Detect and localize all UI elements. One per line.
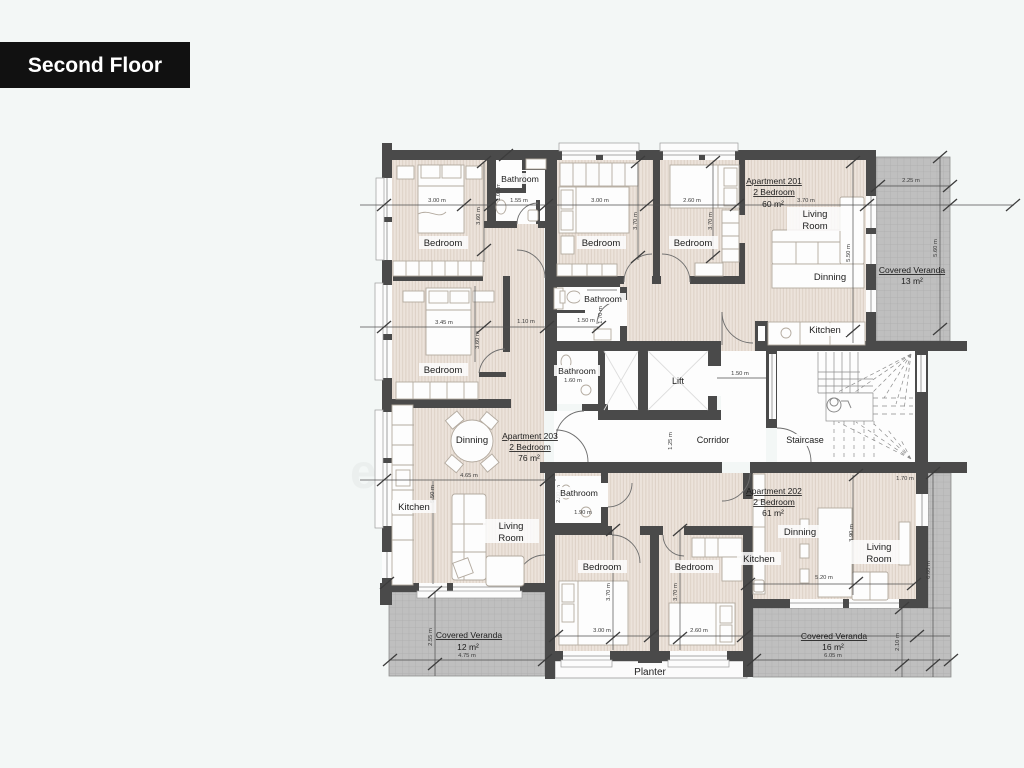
svg-text:Bedroom: Bedroom (582, 238, 621, 249)
svg-text:Bathroom: Bathroom (558, 366, 596, 376)
svg-text:Apartment 201: Apartment 201 (746, 176, 802, 186)
svg-text:Dinning: Dinning (456, 435, 488, 446)
svg-text:Room: Room (498, 533, 523, 544)
svg-text:Bedroom: Bedroom (424, 238, 463, 249)
svg-text:Covered Veranda: Covered Veranda (801, 631, 867, 641)
svg-text:3.60 m: 3.60 m (475, 331, 481, 349)
svg-text:Lift: Lift (672, 376, 685, 386)
svg-text:3.70 m: 3.70 m (673, 583, 679, 601)
svg-text:Kitchen: Kitchen (398, 502, 430, 513)
svg-text:61 m²: 61 m² (762, 508, 784, 518)
svg-text:1.70 m: 1.70 m (598, 306, 604, 324)
svg-text:Planter: Planter (634, 667, 666, 678)
svg-text:3.70 m: 3.70 m (797, 198, 815, 204)
svg-text:Bedroom: Bedroom (583, 562, 622, 573)
svg-text:2 Bedroom: 2 Bedroom (509, 442, 551, 452)
svg-text:2.10 m: 2.10 m (895, 633, 901, 651)
svg-text:Bedroom: Bedroom (675, 562, 714, 573)
svg-text:Apartment 202: Apartment 202 (746, 486, 802, 496)
svg-text:2 Bedroom: 2 Bedroom (753, 497, 795, 507)
svg-text:Kitchen: Kitchen (743, 554, 775, 565)
svg-text:Second Floor: Second Floor (28, 54, 162, 77)
svg-text:16 m²: 16 m² (822, 642, 844, 652)
svg-text:76 m²: 76 m² (518, 453, 540, 463)
svg-text:Dinning: Dinning (814, 272, 846, 283)
svg-text:Bedroom: Bedroom (674, 238, 713, 249)
svg-text:1.60 m: 1.60 m (564, 378, 582, 384)
svg-text:Apartment 203: Apartment 203 (502, 431, 558, 441)
svg-text:6.60 m: 6.60 m (926, 561, 932, 579)
svg-text:3.70 m: 3.70 m (606, 583, 612, 601)
svg-text:Corridor: Corridor (697, 435, 730, 445)
svg-text:Living: Living (803, 209, 828, 220)
svg-text:1.90 m: 1.90 m (574, 510, 592, 516)
svg-text:60 m²: 60 m² (762, 199, 784, 209)
svg-text:3.45 m: 3.45 m (435, 320, 453, 326)
svg-text:2.55 m: 2.55 m (428, 628, 434, 646)
svg-text:5.60 m: 5.60 m (933, 239, 939, 257)
svg-text:4.75 m: 4.75 m (458, 653, 476, 659)
svg-text:Bathroom: Bathroom (584, 294, 622, 304)
svg-text:2.60 m: 2.60 m (683, 198, 701, 204)
svg-text:1.10 m: 1.10 m (517, 319, 535, 325)
svg-text:2.25 m: 2.25 m (902, 178, 920, 184)
svg-text:Covered Veranda: Covered Veranda (436, 630, 502, 640)
svg-text:1.55 m: 1.55 m (510, 198, 528, 204)
svg-text:4.65 m: 4.65 m (460, 473, 478, 479)
svg-text:Room: Room (866, 554, 891, 565)
svg-text:Living: Living (499, 521, 524, 532)
svg-text:6.05 m: 6.05 m (824, 653, 842, 659)
svg-text:1.50 m: 1.50 m (731, 371, 749, 377)
svg-text:2.60 m: 2.60 m (690, 628, 708, 634)
svg-text:1.70 m: 1.70 m (896, 476, 914, 482)
svg-text:Dinning: Dinning (784, 527, 816, 538)
svg-text:Bedroom: Bedroom (424, 365, 463, 376)
svg-text:1.00 m: 1.00 m (496, 183, 502, 201)
svg-text:3.90 m: 3.90 m (849, 524, 855, 542)
svg-text:1.25 m: 1.25 m (668, 432, 674, 450)
svg-text:5.50 m: 5.50 m (846, 244, 852, 262)
svg-text:Kitchen: Kitchen (809, 325, 841, 336)
svg-text:Bathroom: Bathroom (560, 488, 598, 498)
svg-text:Staircase: Staircase (786, 435, 824, 445)
svg-text:Living: Living (867, 542, 892, 553)
svg-text:2 Bedroom: 2 Bedroom (753, 187, 795, 197)
svg-text:3.00 m: 3.00 m (591, 198, 609, 204)
svg-text:1.50 m: 1.50 m (577, 318, 595, 324)
svg-text:12 m²: 12 m² (457, 642, 479, 652)
svg-text:3.70 m: 3.70 m (633, 212, 639, 230)
svg-text:3.60 m: 3.60 m (476, 207, 482, 225)
svg-text:3.70 m: 3.70 m (708, 212, 714, 230)
svg-text:Covered Veranda: Covered Veranda (879, 265, 945, 275)
svg-text:3.00 m: 3.00 m (593, 628, 611, 634)
svg-text:3.00 m: 3.00 m (428, 198, 446, 204)
svg-text:Bathroom: Bathroom (501, 174, 539, 184)
svg-text:Room: Room (802, 221, 827, 232)
svg-text:5.20 m: 5.20 m (815, 575, 833, 581)
svg-text:13 m²: 13 m² (901, 276, 923, 286)
